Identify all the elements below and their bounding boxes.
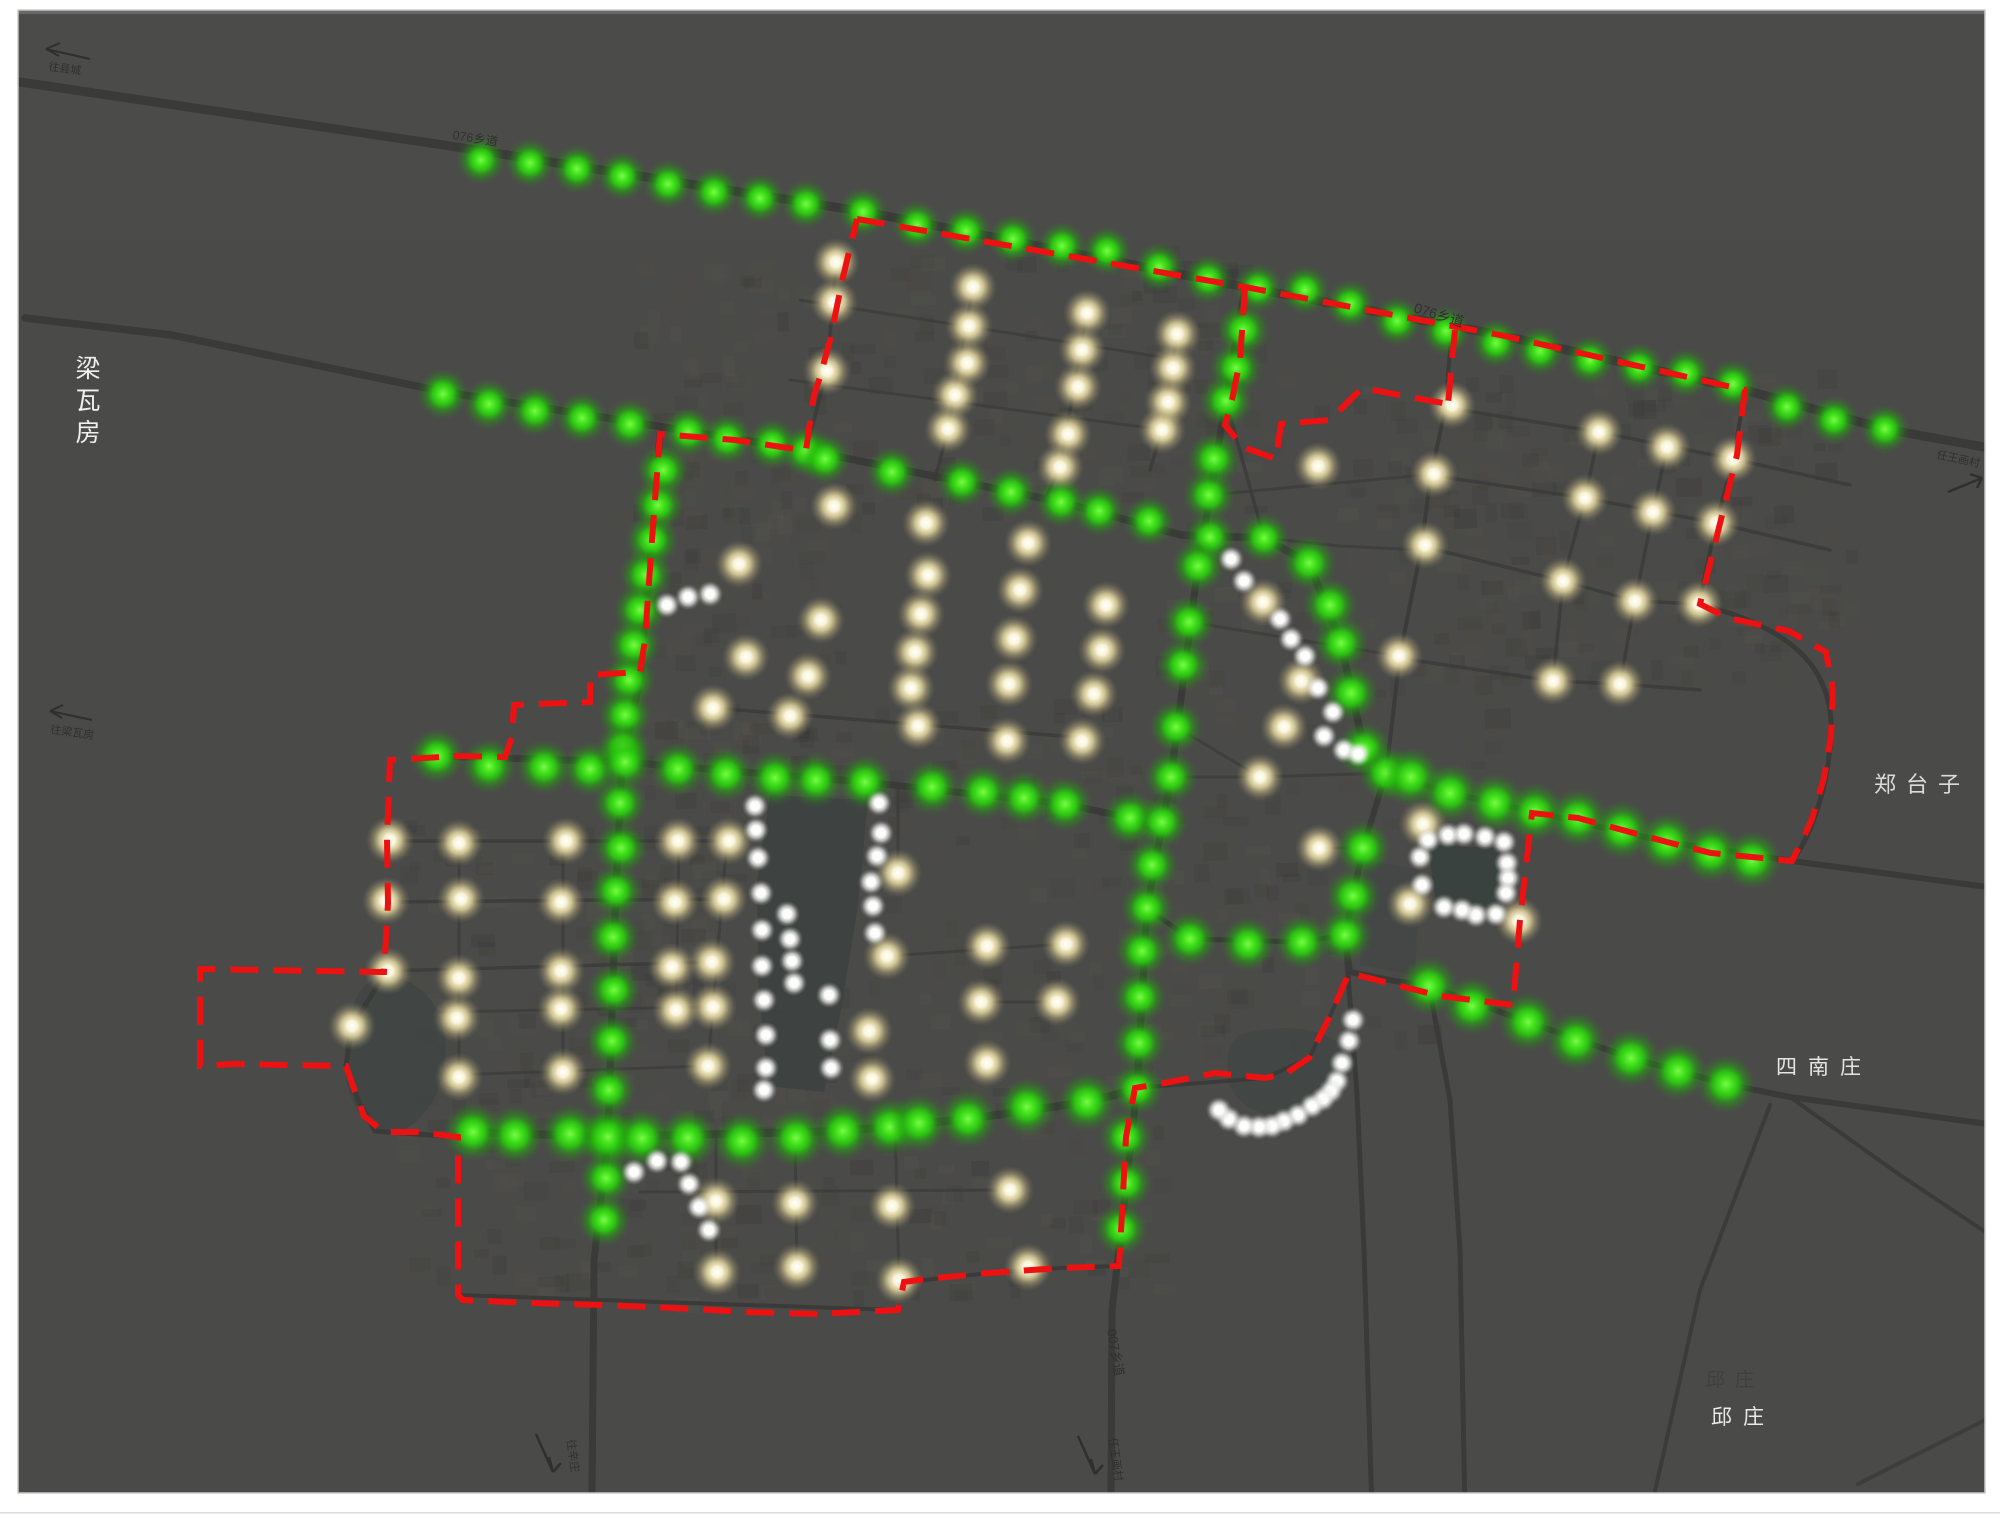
svg-text:郑台子: 郑台子	[1874, 772, 1970, 797]
svg-text:梁: 梁	[75, 355, 100, 383]
svg-text:瓦: 瓦	[75, 387, 100, 415]
svg-text:邱庄: 邱庄	[1706, 1369, 1764, 1391]
svg-text:邱庄: 邱庄	[1711, 1406, 1775, 1429]
svg-text:四南庄: 四南庄	[1776, 1056, 1872, 1079]
svg-text:房: 房	[75, 419, 100, 447]
